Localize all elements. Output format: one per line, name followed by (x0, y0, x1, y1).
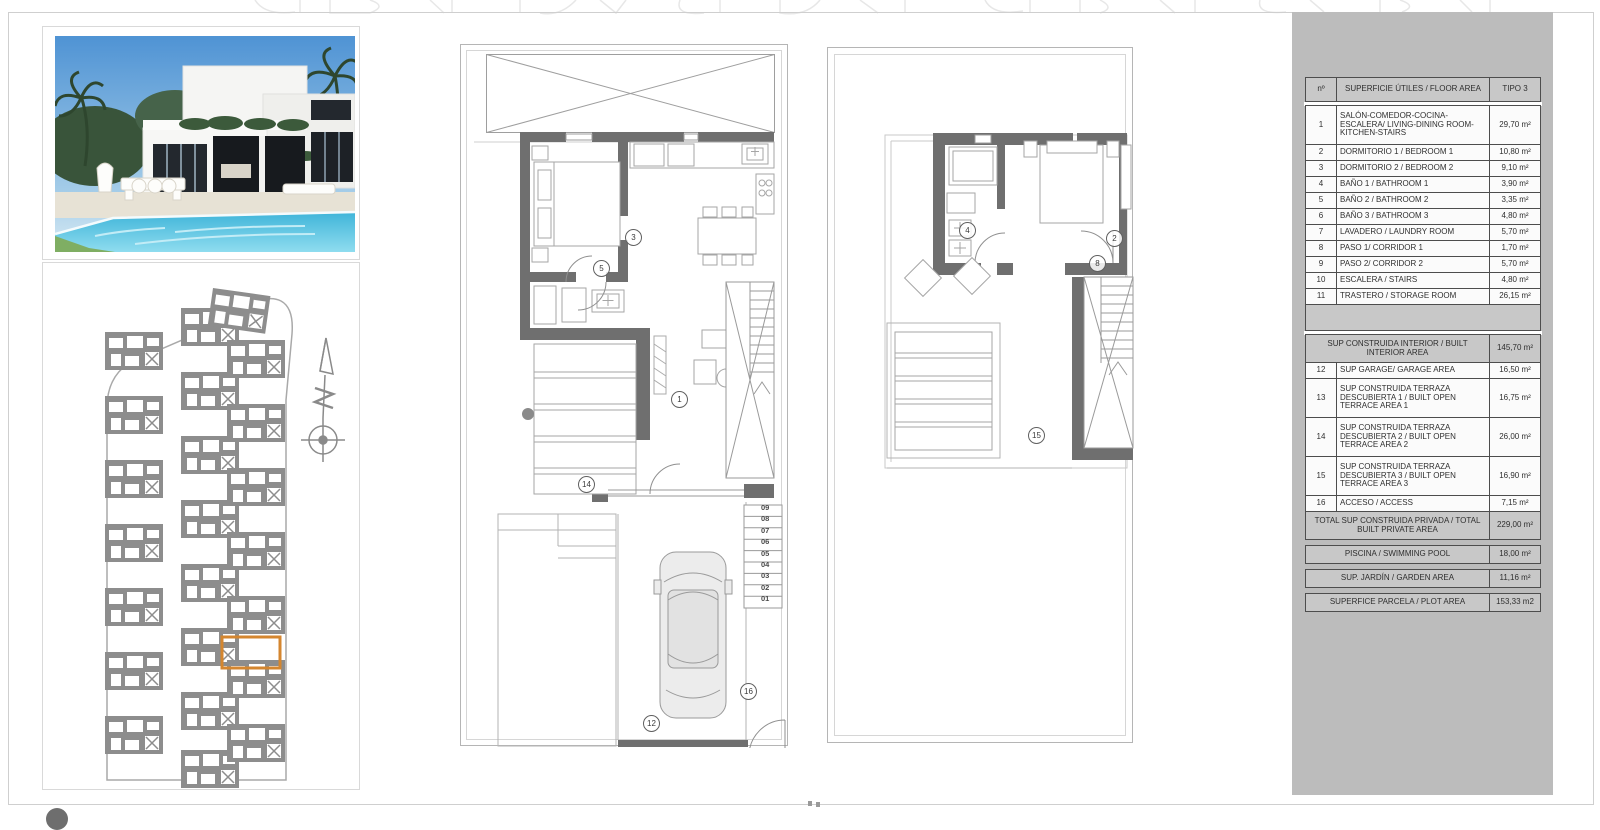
cell-value: 229,00 m² (1489, 512, 1540, 539)
table-row: SUPERFICE PARCELA / PLOT AREA153,33 m2 (1305, 593, 1541, 612)
cell-value: 10,80 m² (1489, 145, 1540, 160)
cell-num: 13 (1306, 379, 1337, 417)
cell-value: 1,70 m² (1489, 241, 1540, 256)
table-row: TOTAL SUP CONSTRUIDA PRIVADA / TOTAL BUI… (1305, 511, 1541, 540)
cell-name: TRASTERO / STORAGE ROOM (1337, 289, 1489, 304)
cell-num: nº (1306, 78, 1337, 101)
table-row: 3DORMITORIO 2 / BEDROOM 29,10 m² (1305, 160, 1541, 177)
table-row: 10ESCALERA / STAIRS4,80 m² (1305, 272, 1541, 289)
north-arrow-icon (315, 338, 333, 418)
cell-value: 4,80 m² (1489, 273, 1540, 288)
cell-name: SUP. JARDÍN / GARDEN AREA (1306, 570, 1489, 587)
cell-value: 153,33 m2 (1489, 594, 1540, 611)
cell-name: ESCALERA / STAIRS (1337, 273, 1489, 288)
access-door (749, 720, 785, 748)
cell-num: 15 (1306, 457, 1337, 495)
cell-num: 6 (1306, 209, 1337, 224)
cell-name: LAVADERO / LAUNDRY ROOM (1337, 225, 1489, 240)
room-label-12: 12 (643, 715, 660, 732)
cell-value: 9,10 m² (1489, 161, 1540, 176)
cell-value: 16,90 m² (1489, 457, 1540, 495)
cell-value: 11,16 m² (1489, 570, 1540, 587)
table-row: 15SUP CONSTRUIDA TERRAZA DESCUBIERTA 3 /… (1305, 456, 1541, 496)
cell-name: PASO 1/ CORRIDOR 1 (1337, 241, 1489, 256)
dining-table (698, 207, 756, 265)
room-label-14: 14 (578, 476, 595, 493)
cell-name: PASO 2/ CORRIDOR 2 (1337, 257, 1489, 272)
cell-value: 29,70 m² (1489, 106, 1540, 144)
room-label-2: 2 (1106, 230, 1123, 247)
cell-name: DORMITORIO 1 / BEDROOM 1 (1337, 145, 1489, 160)
villa-photo (55, 36, 355, 252)
cell-num: 14 (1306, 418, 1337, 456)
footer-specks (808, 801, 812, 806)
terrace-deck-slats (895, 332, 992, 450)
table-spacer-row (1305, 304, 1541, 331)
step-label: 01 (757, 594, 783, 605)
cell-value: 3,35 m² (1489, 193, 1540, 208)
column-dot (522, 408, 534, 420)
cell-name: SUP CONSTRUIDA TERRAZA DESCUBIERTA 3 / B… (1337, 457, 1489, 495)
car (654, 552, 732, 718)
cell-num: 7 (1306, 225, 1337, 240)
cell-value: 16,50 m² (1489, 363, 1540, 378)
step-label: 08 (757, 514, 783, 525)
cell-name: TOTAL SUP CONSTRUIDA PRIVADA / TOTAL BUI… (1306, 512, 1489, 539)
bedroom2-furniture (532, 146, 620, 262)
table-row: nºSUPERFICIE ÚTILES / FLOOR AREATIPO 3 (1305, 77, 1541, 102)
cell-num: 3 (1306, 161, 1337, 176)
corner-dot (46, 808, 68, 830)
cell-num: 4 (1306, 177, 1337, 192)
table-row: PISCINA / SWIMMING POOL18,00 m² (1305, 545, 1541, 564)
table-row: 9PASO 2/ CORRIDOR 25,70 m² (1305, 256, 1541, 273)
room-label-5: 5 (593, 260, 610, 277)
cell-name: SALÓN-COMEDOR-COCINA-ESCALERA/ LIVING-DI… (1337, 106, 1489, 144)
ground-floor-plan (458, 42, 790, 748)
step-label: 06 (757, 537, 783, 548)
cell-value: 26,15 m² (1489, 289, 1540, 304)
room-label-16: 16 (740, 683, 757, 700)
storage-shelves (534, 344, 636, 494)
table-row: 1SALÓN-COMEDOR-COCINA-ESCALERA/ LIVING-D… (1305, 105, 1541, 145)
cell-value: TIPO 3 (1489, 78, 1540, 101)
table-row: 12SUP GARAGE/ GARAGE AREA16,50 m² (1305, 362, 1541, 379)
site-plan (95, 280, 360, 795)
room-label-1: 1 (671, 391, 688, 408)
cell-value: 5,70 m² (1489, 257, 1540, 272)
cell-value: 26,00 m² (1489, 418, 1540, 456)
table-row: SUP. JARDÍN / GARDEN AREA11,16 m² (1305, 569, 1541, 588)
stairs-2 (1084, 277, 1133, 448)
cell-value: 5,70 m² (1489, 225, 1540, 240)
table-row: 11TRASTERO / STORAGE ROOM26,15 m² (1305, 288, 1541, 305)
hatch-strip (654, 336, 666, 394)
cell-num: 10 (1306, 273, 1337, 288)
cell-num: 9 (1306, 257, 1337, 272)
table-row: 16ACCESO / ACCESS7,15 m² (1305, 495, 1541, 512)
cell-name: ACCESO / ACCESS (1337, 496, 1489, 511)
cell-num: 2 (1306, 145, 1337, 160)
table-row: 6BAÑO 3 / BATHROOM 34,80 m² (1305, 208, 1541, 225)
kitchen-counter (630, 142, 774, 214)
room-label-8: 8 (1089, 255, 1106, 272)
cell-name: SUP GARAGE/ GARAGE AREA (1337, 363, 1489, 378)
roof-cross (474, 55, 775, 143)
steps-list: 090807060504030201 (757, 503, 783, 606)
bathroom1-fixtures (947, 147, 997, 256)
step-label: 04 (757, 560, 783, 571)
laundry-fixtures (534, 286, 624, 324)
cell-name: BAÑO 1 / BATHROOM 1 (1337, 177, 1489, 192)
step-label: 09 (757, 503, 783, 514)
step-label: 02 (757, 583, 783, 594)
cell-name: BAÑO 3 / BATHROOM 3 (1337, 209, 1489, 224)
table-row: 4BAÑO 1 / BATHROOM 13,90 m² (1305, 176, 1541, 193)
cell-num: 5 (1306, 193, 1337, 208)
cell-num: 12 (1306, 363, 1337, 378)
cell-name: PISCINA / SWIMMING POOL (1306, 546, 1489, 563)
cell-name: BAÑO 2 / BATHROOM 2 (1337, 193, 1489, 208)
table-row: 8PASO 1/ CORRIDOR 11,70 m² (1305, 240, 1541, 257)
cell-value: 145,70 m² (1489, 335, 1540, 362)
step-label: 03 (757, 571, 783, 582)
cell-value: 4,80 m² (1489, 209, 1540, 224)
cell-value: 18,00 m² (1489, 546, 1540, 563)
table-row: SUP CONSTRUIDA INTERIOR / BUILT INTERIOR… (1305, 334, 1541, 363)
patio (498, 514, 616, 746)
cell-value: 16,75 m² (1489, 379, 1540, 417)
table-row: 7LAVADERO / LAUNDRY ROOM5,70 m² (1305, 224, 1541, 241)
cell-name: SUP CONSTRUIDA TERRAZA DESCUBIERTA 2 / B… (1337, 418, 1489, 456)
cell-num: 1 (1306, 106, 1337, 144)
side-panel: nºSUPERFICIE ÚTILES / FLOOR AREATIPO 31S… (1292, 12, 1553, 795)
room-label-4: 4 (959, 222, 976, 239)
table-row: 2DORMITORIO 1 / BEDROOM 110,80 m² (1305, 144, 1541, 161)
step-label: 05 (757, 549, 783, 560)
cell-name: SUPERFICE PARCELA / PLOT AREA (1306, 594, 1489, 611)
cell-name: SUPERFICIE ÚTILES / FLOOR AREA (1337, 78, 1489, 101)
cell-value: 3,90 m² (1489, 177, 1540, 192)
table-row: 5BAÑO 2 / BATHROOM 23,35 m² (1305, 192, 1541, 209)
cell-num: 16 (1306, 496, 1337, 511)
room-label-15: 15 (1028, 427, 1045, 444)
cell-num: 11 (1306, 289, 1337, 304)
step-label: 07 (757, 526, 783, 537)
window-slot (975, 135, 991, 143)
cell-name: DORMITORIO 2 / BEDROOM 2 (1337, 161, 1489, 176)
site-units (105, 288, 285, 788)
compass-icon (301, 418, 345, 462)
stairs (726, 282, 774, 478)
first-floor-plan (825, 45, 1135, 745)
cell-value: 7,15 m² (1489, 496, 1540, 511)
cell-name: SUP CONSTRUIDA INTERIOR / BUILT INTERIOR… (1306, 335, 1489, 362)
bedroom1-furniture (1024, 141, 1131, 223)
cell-name: SUP CONSTRUIDA TERRAZA DESCUBIERTA 1 / B… (1337, 379, 1489, 417)
room-label-3: 3 (625, 229, 642, 246)
cell-num: 8 (1306, 241, 1337, 256)
table-row: 13SUP CONSTRUIDA TERRAZA DESCUBIERTA 1 /… (1305, 378, 1541, 418)
area-table: nºSUPERFICIE ÚTILES / FLOOR AREATIPO 31S… (1305, 78, 1541, 612)
table-row: 14SUP CONSTRUIDA TERRAZA DESCUBIERTA 2 /… (1305, 417, 1541, 457)
